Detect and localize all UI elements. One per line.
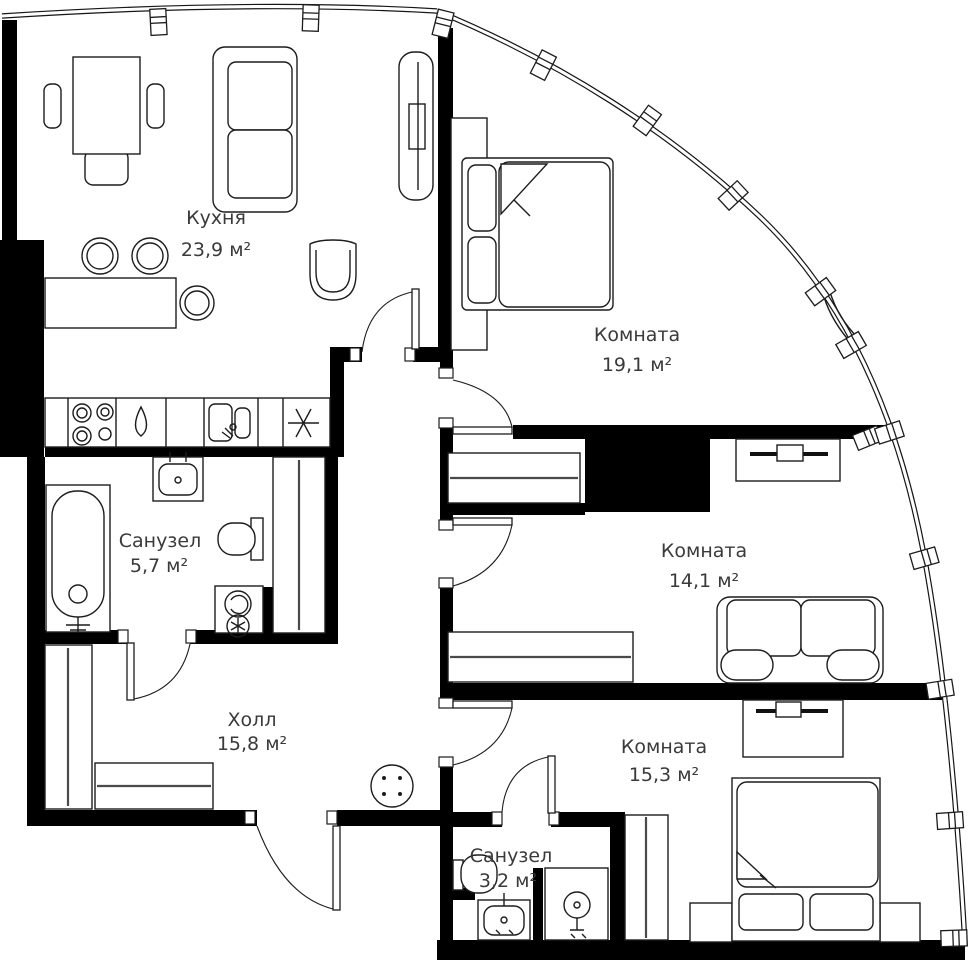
room-label-bathroom-1: Санузел 5,7 м²: [119, 530, 202, 577]
wardrobe-closet: [45, 645, 92, 809]
shower: [545, 868, 608, 940]
svg-text:Санузел: Санузел: [119, 530, 202, 552]
pouf: [371, 765, 413, 807]
bedroom-1-bed: [451, 118, 613, 350]
dining-table: [73, 57, 140, 154]
svg-text:Санузел: Санузел: [470, 845, 553, 867]
furniture: [44, 47, 920, 942]
floor-plan-drawing: Кухня 23,9 м² Комната 19,1 м² Комната 14…: [0, 0, 974, 960]
dining-chair: [85, 150, 128, 185]
svg-text:14,1 м²: 14,1 м²: [669, 570, 739, 592]
pillow: [468, 165, 496, 231]
bedroom-3-bed: [690, 778, 920, 942]
kitchen-sofa: [213, 47, 297, 212]
tall-cabinet: [399, 52, 433, 200]
svg-text:23,9 м²: 23,9 м²: [181, 239, 251, 261]
bedroom-1-door: [453, 380, 512, 434]
window-frame-icon: [936, 812, 963, 830]
room-label-kitchen: Кухня 23,9 м²: [181, 207, 251, 261]
bedroom-2-door: [453, 518, 512, 586]
room-label-hall: Холл 15,8 м²: [217, 709, 287, 755]
wardrobe-closet: [95, 763, 213, 809]
room-label-bedroom-2: Комната 14,1 м²: [661, 540, 747, 592]
dining-chair: [147, 84, 164, 128]
toilet: [218, 518, 263, 560]
window-frame-icon: [941, 930, 968, 947]
floor-plan: Кухня 23,9 м² Комната 19,1 м² Комната 14…: [0, 0, 974, 960]
svg-text:Комната: Комната: [621, 736, 707, 758]
armchair: [310, 240, 356, 300]
window-frame-icon: [875, 421, 905, 444]
washbasin: [478, 893, 530, 940]
bathroom-2-door: [502, 756, 555, 813]
wardrobe-closet: [448, 632, 633, 682]
washer-dryer: [215, 586, 263, 637]
pillow: [468, 237, 496, 303]
kitchen-counter: [45, 398, 330, 447]
window-frame-icon: [910, 547, 939, 570]
room-label-bedroom-3: Комната 15,3 м²: [621, 736, 707, 786]
wardrobe-closet: [273, 457, 325, 633]
kitchen-door: [362, 289, 419, 352]
svg-text:15,8 м²: 15,8 м²: [217, 733, 287, 755]
sofa: [717, 597, 883, 683]
wardrobe-closet: [625, 815, 668, 940]
kitchen-sink-icon: [209, 404, 250, 441]
bathroom-1-door: [127, 643, 190, 700]
svg-text:15,3 м²: 15,3 м²: [629, 764, 699, 786]
svg-text:Комната: Комната: [594, 324, 680, 346]
washbasin: [153, 452, 203, 501]
svg-text:19,1 м²: 19,1 м²: [602, 354, 672, 376]
nightstand: [880, 903, 920, 942]
nightstand: [690, 903, 732, 942]
svg-text:Холл: Холл: [228, 709, 277, 731]
window-frame-icon: [926, 679, 954, 699]
wardrobe-closet: [448, 453, 580, 503]
window-frame-icon: [302, 5, 319, 32]
pillow: [810, 894, 873, 930]
bar-counter: [45, 278, 176, 328]
bedroom-3-door: [453, 701, 512, 765]
pillow: [739, 894, 803, 930]
svg-text:3,2 м²: 3,2 м²: [479, 870, 537, 892]
tv-stand: [736, 439, 840, 481]
svg-text:Кухня: Кухня: [186, 207, 246, 229]
tv-stand: [743, 700, 843, 757]
bathtub: [46, 485, 110, 632]
svg-text:Комната: Комната: [661, 540, 747, 562]
entrance-door: [257, 826, 340, 910]
window-frame-icon: [150, 9, 167, 36]
room-label-bedroom-1: Комната 19,1 м²: [594, 324, 680, 376]
dining-chair: [44, 84, 61, 128]
svg-text:5,7 м²: 5,7 м²: [130, 555, 188, 577]
dining-table-group: [44, 57, 164, 185]
